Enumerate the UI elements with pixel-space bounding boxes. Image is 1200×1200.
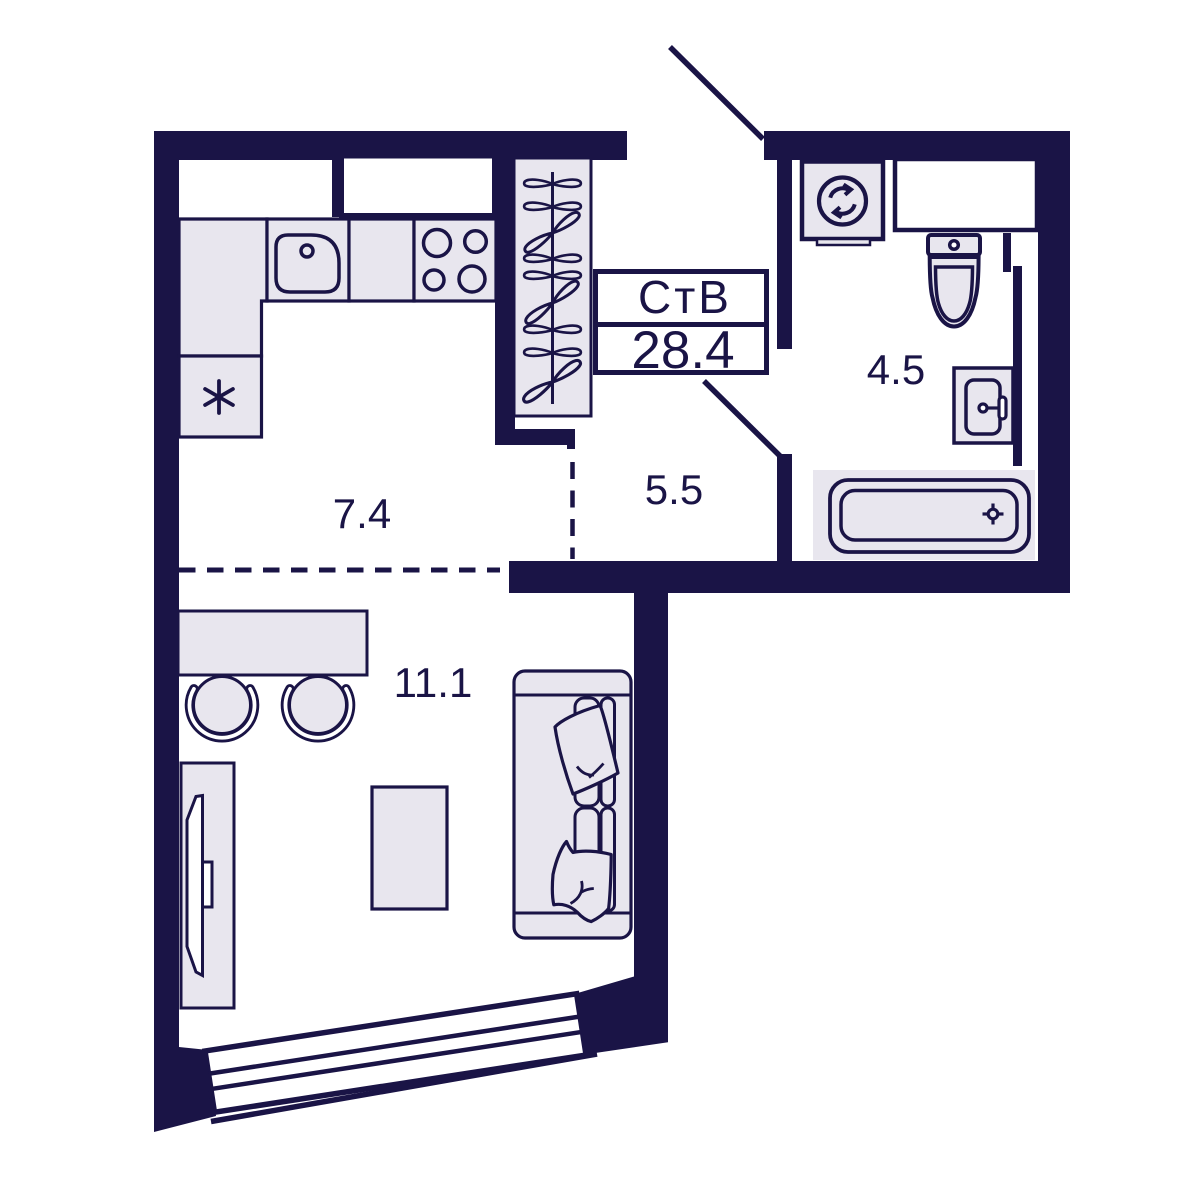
svg-text:7.4: 7.4 xyxy=(333,490,391,537)
svg-text:11.1: 11.1 xyxy=(394,659,473,706)
svg-text:28.4: 28.4 xyxy=(631,321,734,380)
svg-text:5.5: 5.5 xyxy=(645,466,703,513)
svg-text:4.5: 4.5 xyxy=(867,346,925,393)
svg-text:СтВ: СтВ xyxy=(638,271,732,323)
